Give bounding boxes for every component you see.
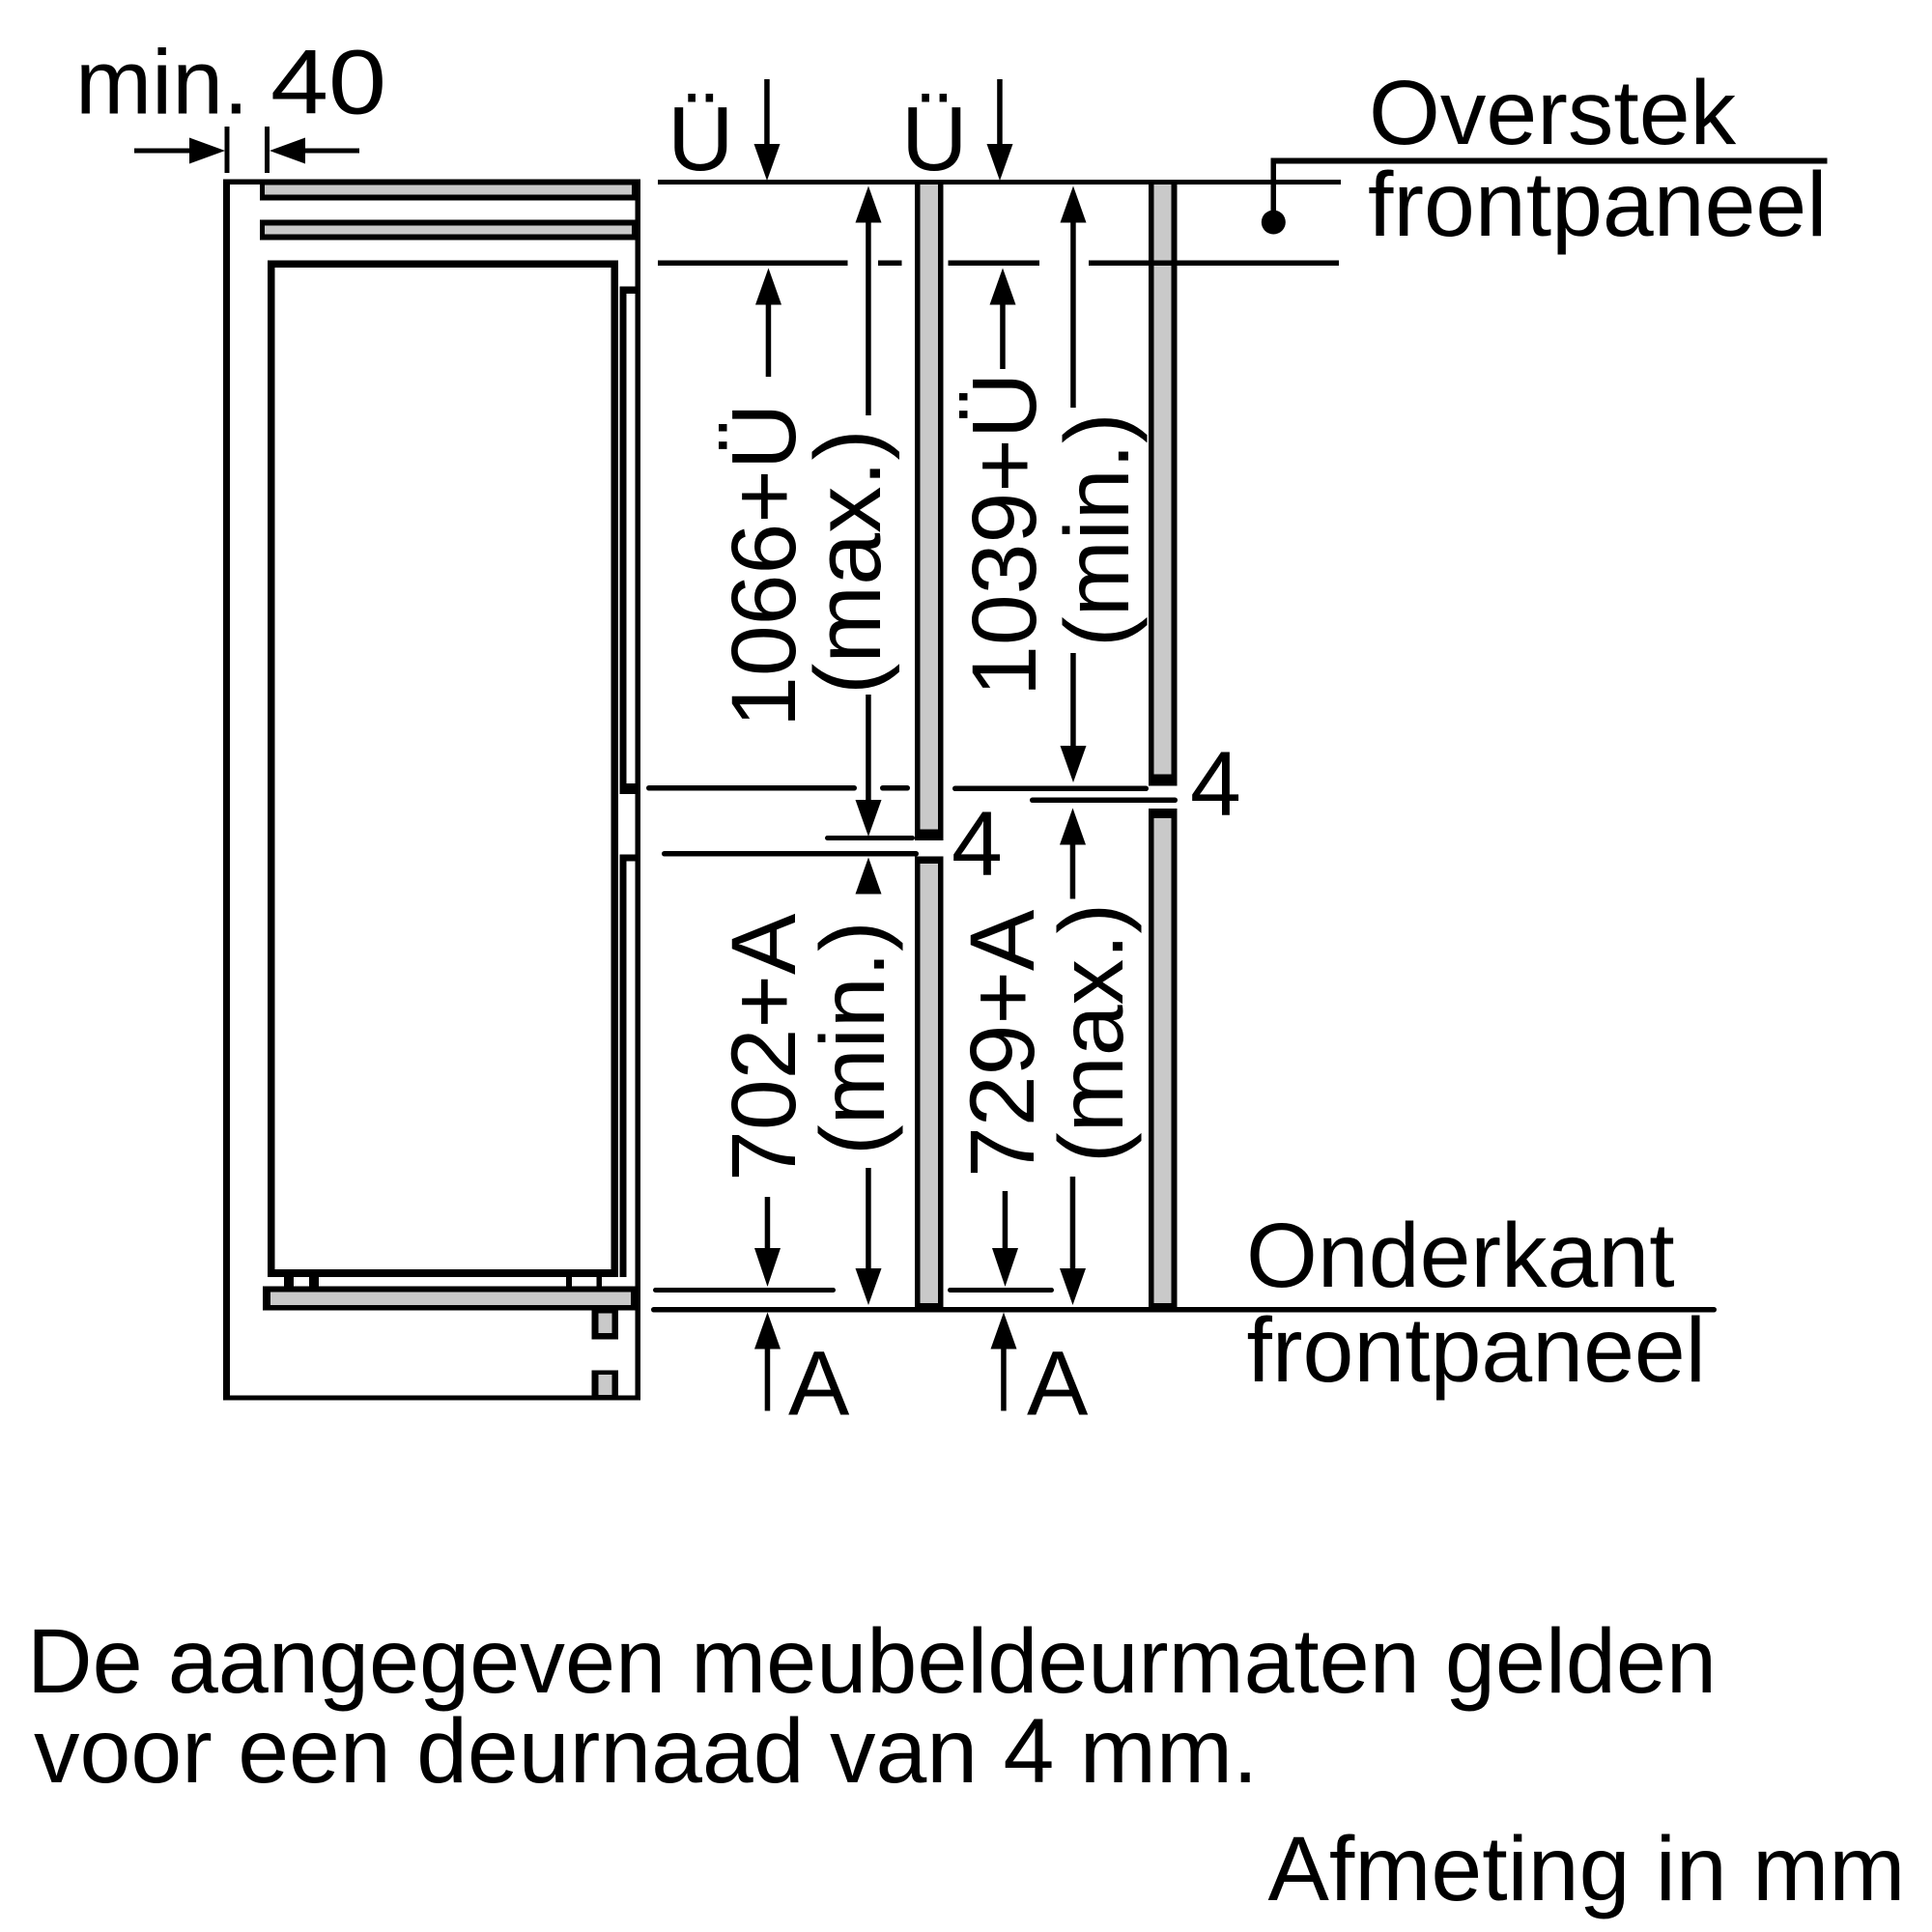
svg-text:Ü: Ü <box>668 88 734 190</box>
svg-text:frontpaneel: frontpaneel <box>1368 154 1827 256</box>
svg-text:Afmeting in mm: Afmeting in mm <box>1268 1818 1906 1920</box>
svg-text:(max.): (max.) <box>795 429 900 695</box>
svg-text:702+A: 702+A <box>713 913 815 1181</box>
svg-text:A: A <box>1027 1333 1089 1435</box>
svg-text:A: A <box>788 1333 850 1435</box>
svg-text:frontpaneel: frontpaneel <box>1247 1299 1706 1402</box>
svg-text:voor een deurnaad van 4 mm.: voor een deurnaad van 4 mm. <box>34 1700 1258 1803</box>
svg-text:(max.): (max.) <box>1040 903 1143 1163</box>
svg-text:Ü: Ü <box>901 88 968 190</box>
svg-text:40: 40 <box>270 32 386 134</box>
svg-text:Overstek: Overstek <box>1369 62 1737 164</box>
svg-text:Onderkant: Onderkant <box>1246 1205 1675 1307</box>
svg-text:1039+Ü: 1039+Ü <box>953 373 1056 696</box>
svg-text:De aangegeven meubeldeurmaten: De aangegeven meubeldeurmaten gelden <box>27 1610 1717 1713</box>
svg-text:(min.): (min.) <box>802 921 904 1155</box>
svg-text:4: 4 <box>952 793 1003 895</box>
svg-text:729+A: 729+A <box>952 909 1054 1178</box>
svg-text:(min.): (min.) <box>1046 412 1149 647</box>
svg-text:min.: min. <box>75 32 248 134</box>
svg-text:4: 4 <box>1190 733 1241 836</box>
